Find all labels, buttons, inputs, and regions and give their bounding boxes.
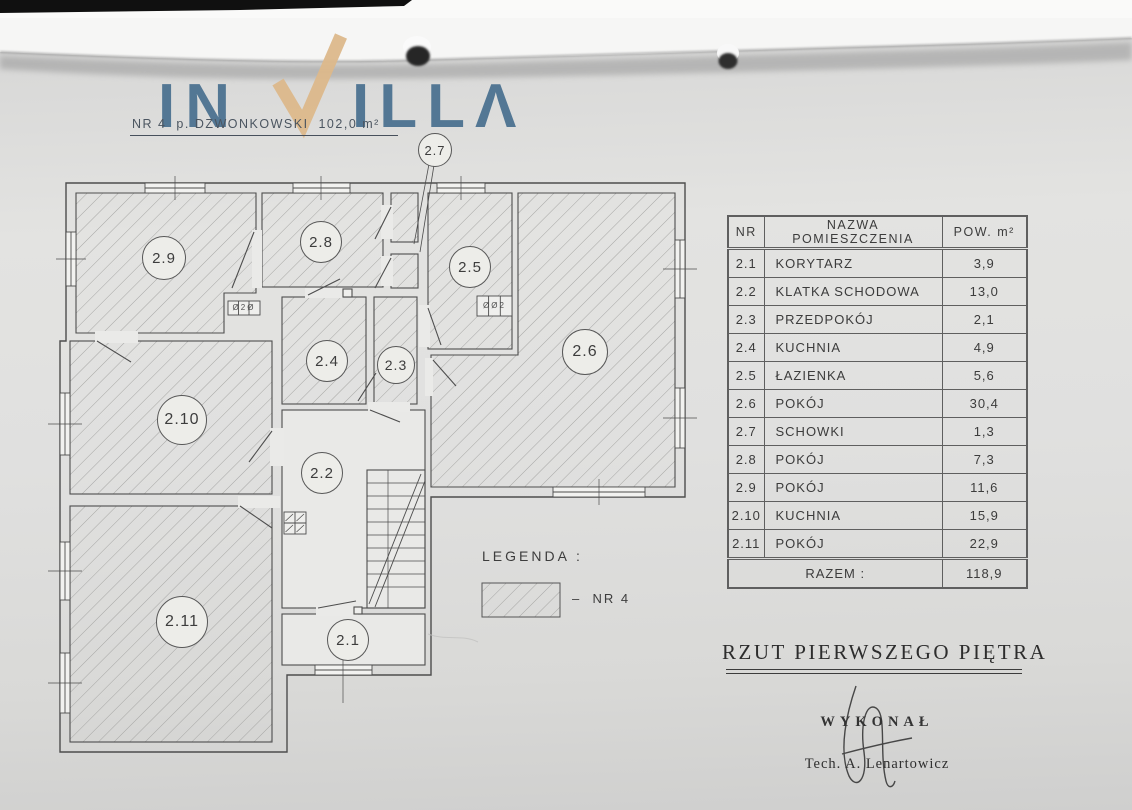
- punch-hole: [406, 46, 430, 66]
- table-row: 2.3PRZEDPOKÓJ2,1: [728, 306, 1027, 334]
- room-2.7-closet-b: [391, 254, 418, 288]
- table-row: 2.7SCHOWKI1,3: [728, 418, 1027, 446]
- cell-nr: 2.5: [728, 362, 764, 390]
- cell-area: 11,6: [942, 474, 1027, 502]
- room-label-2.5: 2.5: [449, 246, 491, 288]
- author-name: Tech. A. Lenartowicz: [727, 756, 1027, 773]
- room-areas-table: NR NAZWA POMIESZCZENIA POW. m² 2.1KORYTA…: [727, 215, 1028, 589]
- cell-area: 7,3: [942, 446, 1027, 474]
- scan-smudge: [428, 634, 478, 642]
- cell-nr: 2.10: [728, 502, 764, 530]
- drawing-title: RZUT PIERWSZEGO PIĘTRA: [722, 640, 1026, 665]
- made-by-label: WYKONAŁ: [727, 714, 1027, 731]
- legend-title: LEGENDA :: [482, 548, 583, 564]
- cell-name: POKÓJ: [764, 474, 942, 502]
- cell-name: POKÓJ: [764, 446, 942, 474]
- table-header-row: NR NAZWA POMIESZCZENIA POW. m²: [728, 216, 1027, 249]
- cell-name: KUCHNIA: [764, 502, 942, 530]
- cell-name: KORYTARZ: [764, 249, 942, 278]
- total-label: RAZEM :: [728, 559, 942, 589]
- room-label-2.2: 2.2: [301, 452, 343, 494]
- cell-nr: 2.1: [728, 249, 764, 278]
- room-label-2.11: 2.11: [156, 596, 208, 648]
- cell-name: POKÓJ: [764, 390, 942, 418]
- cell-nr: 2.9: [728, 474, 764, 502]
- scan-artifacts: [0, 0, 1132, 79]
- cell-area: 4,9: [942, 334, 1027, 362]
- col-header-name: NAZWA POMIESZCZENIA: [764, 216, 942, 249]
- cell-nr: 2.2: [728, 278, 764, 306]
- table-row: 2.6POKÓJ30,4: [728, 390, 1027, 418]
- col-header-nr: NR: [728, 216, 764, 249]
- room-2.7-closet-a: [391, 193, 418, 242]
- punch-hole: [719, 53, 738, 69]
- table-row: 2.5ŁAZIENKA5,6: [728, 362, 1027, 390]
- cell-area: 22,9: [942, 530, 1027, 559]
- legend-item: – NR 4: [572, 591, 630, 606]
- legend-hatch-swatch: [482, 583, 560, 617]
- cell-area: 30,4: [942, 390, 1027, 418]
- cell-area: 5,6: [942, 362, 1027, 390]
- room-label-2.1: 2.1: [327, 619, 369, 661]
- total-value: 118,9: [942, 559, 1027, 589]
- room-label-2.9: 2.9: [142, 236, 186, 280]
- cell-nr: 2.6: [728, 390, 764, 418]
- table-row: 2.9POKÓJ11,6: [728, 474, 1027, 502]
- col-header-area: POW. m²: [942, 216, 1027, 249]
- cell-name: ŁAZIENKA: [764, 362, 942, 390]
- table-row: 2.8POKÓJ7,3: [728, 446, 1027, 474]
- table-row: 2.4KUCHNIA4,9: [728, 334, 1027, 362]
- cell-area: 2,1: [942, 306, 1027, 334]
- plan-reference-note: NR 4 p. DZWONKOWSKI 102,0 m²: [130, 117, 398, 136]
- table-row: 2.11POKÓJ22,9: [728, 530, 1027, 559]
- cell-name: KLATKA SCHODOWA: [764, 278, 942, 306]
- room-label-2.4: 2.4: [306, 340, 348, 382]
- cell-name: SCHOWKI: [764, 418, 942, 446]
- vent-label-right: ØØ2: [477, 300, 512, 312]
- cell-name: KUCHNIA: [764, 334, 942, 362]
- cell-area: 15,9: [942, 502, 1027, 530]
- cell-name: POKÓJ: [764, 530, 942, 559]
- room-label-2.6: 2.6: [562, 329, 608, 375]
- cell-area: 13,0: [942, 278, 1027, 306]
- vent-label-left: Ø2Ø: [228, 302, 260, 314]
- cell-nr: 2.7: [728, 418, 764, 446]
- cell-nr: 2.8: [728, 446, 764, 474]
- scanned-floor-plan-page: IN ILLΛ: [0, 0, 1132, 810]
- room-label-2.7: 2.7: [418, 133, 452, 167]
- table-row: 2.10KUCHNIA15,9: [728, 502, 1027, 530]
- cell-area: 3,9: [942, 249, 1027, 278]
- room-label-2.8: 2.8: [300, 221, 342, 263]
- room-label-2.10: 2.10: [157, 395, 207, 445]
- title-underline: [726, 669, 1022, 674]
- cell-nr: 2.11: [728, 530, 764, 559]
- cell-name: PRZEDPOKÓJ: [764, 306, 942, 334]
- cell-nr: 2.4: [728, 334, 764, 362]
- room-label-2.3: 2.3: [377, 346, 415, 384]
- table-total-row: RAZEM : 118,9: [728, 559, 1027, 589]
- table-row: 2.2KLATKA SCHODOWA13,0: [728, 278, 1027, 306]
- cell-area: 1,3: [942, 418, 1027, 446]
- cell-nr: 2.3: [728, 306, 764, 334]
- table-row: 2.1KORYTARZ3,9: [728, 249, 1027, 278]
